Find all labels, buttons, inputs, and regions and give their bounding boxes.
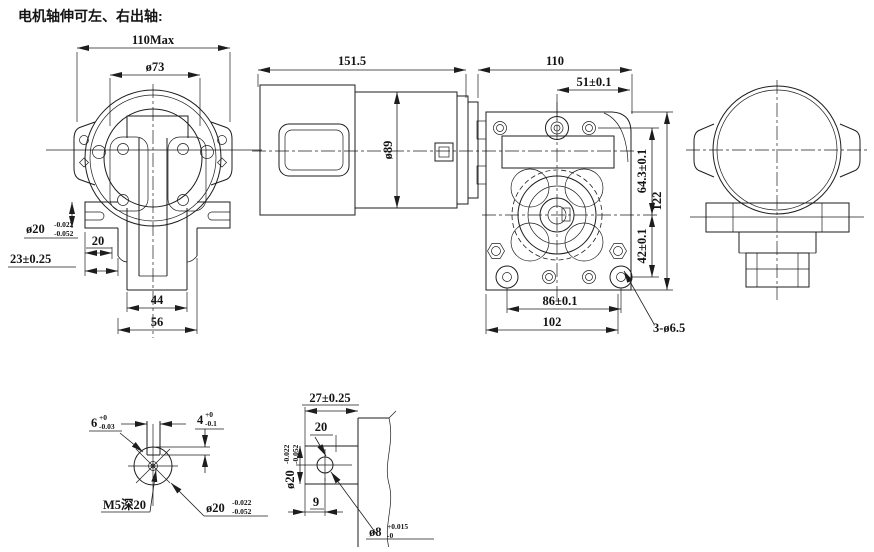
terminal-box: [435, 143, 453, 161]
svg-text:-0.022: -0.022: [282, 444, 291, 464]
dim-key-depth: 4 +0 -0.1: [195, 410, 224, 473]
dim-motor-dia: ø89: [381, 141, 395, 160]
gearbox-housing: [260, 85, 355, 215]
drawing-sheet: 电机轴伸可左、右出轴:: [0, 0, 874, 547]
svg-text:-0: -0: [387, 531, 393, 540]
svg-text:9: 9: [313, 495, 319, 509]
dim-lower: 42±0.1: [635, 229, 649, 264]
svg-text:4: 4: [197, 413, 204, 427]
svg-text:23±0.25: 23±0.25: [10, 252, 51, 266]
svg-text:-0.022: -0.022: [54, 220, 74, 229]
dim-shaft-len: 20: [85, 234, 112, 259]
side-view: ø89 151.5 110 51±0.1: [252, 54, 636, 215]
gearbox-face-view: 64.3±0.1 42±0.1 122 86±0.1 102 3-ø6.5: [477, 102, 685, 335]
svg-text:ø20: ø20: [26, 222, 45, 236]
dim-hub-inner: 44: [151, 293, 164, 307]
dim-flange-dia: ø73: [146, 60, 165, 74]
svg-text:20: 20: [92, 234, 105, 248]
front-view: 110Max ø73 ø20 -0.022 -0.052 20 23±0.25: [8, 33, 262, 338]
svg-text:ø8: ø8: [369, 525, 382, 539]
svg-text:+0: +0: [99, 413, 107, 422]
svg-text:ø20: ø20: [283, 470, 297, 489]
dim-upper: 64.3±0.1: [635, 149, 649, 193]
dim-hub-outer: 56: [151, 315, 164, 329]
gearbox-window: [279, 124, 349, 176]
svg-text:27±0.25: 27±0.25: [309, 391, 350, 405]
dim-gearbox-width: 110: [546, 54, 564, 68]
rear-ear-right: [840, 124, 860, 177]
gearbox-face-plate: [486, 112, 631, 290]
svg-text:-0.1: -0.1: [205, 419, 217, 428]
dim-hole-span: 86±0.1: [543, 294, 578, 308]
rear-view: [686, 80, 868, 300]
svg-text:-0.03: -0.03: [99, 422, 115, 431]
svg-text:+0: +0: [205, 410, 213, 419]
dim-mount-holes: 3-ø6.5: [653, 321, 685, 335]
dim-key-width: 6 +0 -0.03: [89, 413, 186, 452]
shaft-stub-left: [85, 202, 118, 228]
tap-callout: M5深20: [101, 470, 156, 512]
svg-text:-0.052: -0.052: [54, 229, 74, 238]
mount-ear-left: [74, 122, 95, 185]
rear-ear-left: [694, 124, 714, 177]
dim-shaft-dia-label: ø20 -0.022 -0.052: [24, 202, 78, 238]
mount-ear-right: [211, 122, 232, 185]
hole-dia-callout: ø8 +0.015 -0: [331, 472, 434, 540]
dim-height: 122: [650, 192, 664, 211]
svg-text:20: 20: [315, 420, 328, 434]
motor-body: [355, 92, 457, 208]
svg-text:-0.052: -0.052: [232, 507, 252, 516]
dim-width-max: 110Max: [132, 33, 175, 47]
dim-length: 27±0.25: [302, 391, 359, 411]
engineering-drawing: 电机轴伸可左、右出轴:: [0, 0, 874, 547]
shaft-side-detail: 27±0.25 20 ø20 -0.022 -0.052 9: [282, 391, 434, 547]
shaft-dia-callout: ø20 -0.022 -0.052: [171, 483, 268, 516]
svg-text:6: 6: [91, 416, 97, 430]
dim-width: 102: [543, 315, 562, 329]
drawing-note: 电机轴伸可左、右出轴:: [18, 8, 163, 24]
dim-hole-offset: 51±0.1: [577, 75, 612, 89]
dim-shaft-dia: ø20 -0.022 -0.052: [282, 444, 300, 489]
svg-text:ø20: ø20: [206, 501, 225, 515]
svg-text:-0.022: -0.022: [232, 498, 252, 507]
dim-total-len: 151.5: [338, 54, 366, 68]
svg-text:M5深20: M5深20: [103, 497, 146, 512]
dim-key-len: 20: [310, 420, 336, 456]
shaft-end-detail: 6 +0 -0.03 4 +0 -0.1 M5深20 ø20 -0.022 -0…: [89, 410, 268, 516]
svg-text:-0.052: -0.052: [291, 444, 300, 464]
svg-text:+0.015: +0.015: [387, 522, 408, 531]
